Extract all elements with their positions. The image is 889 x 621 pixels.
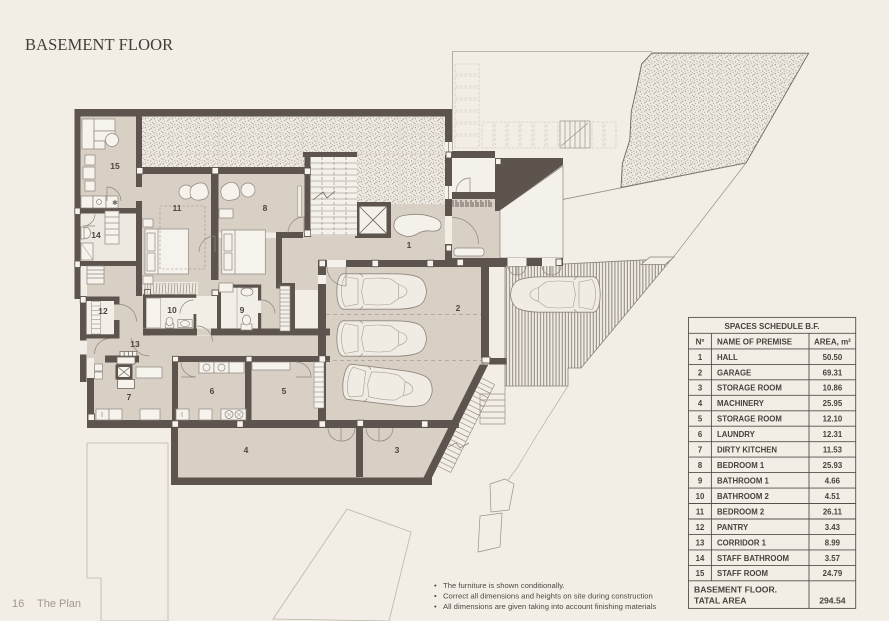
svg-text:DIRTY KITCHEN: DIRTY KITCHEN	[717, 446, 777, 455]
svg-text:2: 2	[698, 368, 703, 377]
svg-text:BASEMENT FLOOR.: BASEMENT FLOOR.	[694, 585, 777, 595]
svg-text:69.31: 69.31	[823, 368, 843, 377]
svg-text:10.86: 10.86	[823, 384, 843, 393]
svg-text:12.31: 12.31	[823, 430, 843, 439]
svg-text:3: 3	[395, 445, 400, 455]
svg-text:4.66: 4.66	[825, 477, 841, 486]
svg-text:50.50: 50.50	[823, 353, 843, 362]
svg-text:SPACES SCHEDULE B.F.: SPACES SCHEDULE B.F.	[725, 322, 820, 331]
svg-text:7: 7	[127, 392, 132, 402]
svg-text:•: •	[434, 592, 437, 601]
svg-text:5: 5	[282, 386, 287, 396]
svg-text:25.95: 25.95	[823, 399, 843, 408]
svg-text:MACHINERY: MACHINERY	[717, 399, 765, 408]
svg-text:9: 9	[698, 477, 703, 486]
svg-text:9: 9	[240, 305, 245, 315]
svg-text:•: •	[434, 602, 437, 611]
svg-text:13: 13	[696, 538, 705, 547]
svg-text:BEDROOM 2: BEDROOM 2	[717, 507, 765, 516]
svg-text:12.10: 12.10	[823, 415, 843, 424]
svg-text:•: •	[434, 581, 437, 590]
svg-text:3.43: 3.43	[825, 523, 841, 532]
svg-text:AREA, m²: AREA, m²	[814, 338, 851, 347]
svg-text:TATAL AREA: TATAL AREA	[694, 596, 747, 606]
svg-text:2: 2	[456, 303, 461, 313]
svg-text:BATHROOM 1: BATHROOM 1	[717, 477, 769, 486]
svg-text:14: 14	[91, 230, 101, 240]
svg-text:15: 15	[696, 569, 705, 578]
svg-text:294.54: 294.54	[819, 596, 846, 606]
svg-text:3: 3	[698, 384, 703, 393]
svg-text:1: 1	[407, 240, 412, 250]
svg-text:NAME OF PREMISE: NAME OF PREMISE	[717, 338, 793, 347]
svg-text:6: 6	[210, 386, 215, 396]
svg-text:11: 11	[696, 507, 705, 516]
svg-text:13: 13	[130, 339, 140, 349]
svg-text:7: 7	[698, 446, 702, 455]
svg-text:✱: ✱	[112, 199, 118, 207]
svg-text:14: 14	[696, 554, 705, 563]
svg-text:10: 10	[696, 492, 705, 501]
svg-text:CORRIDOR 1: CORRIDOR 1	[717, 538, 767, 547]
svg-text:4: 4	[698, 399, 703, 408]
svg-text:5: 5	[698, 415, 703, 424]
svg-text:Correct all dimensions and hei: Correct all dimensions and heights on si…	[443, 592, 653, 601]
svg-text:12: 12	[696, 523, 705, 532]
svg-text:4: 4	[244, 445, 249, 455]
svg-text:3.57: 3.57	[825, 554, 840, 563]
svg-text:16: 16	[12, 598, 24, 610]
svg-text:12: 12	[98, 306, 108, 316]
svg-text:8.99: 8.99	[825, 538, 841, 547]
svg-text:Nº: Nº	[696, 338, 705, 347]
svg-text:BEDROOM 1: BEDROOM 1	[717, 461, 765, 470]
svg-text:All dimensions are given takin: All dimensions are given taking into acc…	[443, 602, 656, 611]
svg-text:15: 15	[110, 161, 120, 171]
svg-text:BASEMENT FLOOR: BASEMENT FLOOR	[25, 35, 173, 54]
svg-text:The furniture is shown conditi: The furniture is shown conditionally.	[443, 581, 565, 590]
svg-text:11: 11	[173, 203, 182, 213]
svg-text:HALL: HALL	[717, 353, 738, 362]
svg-text:PANTRY: PANTRY	[717, 523, 749, 532]
svg-text:25.93: 25.93	[823, 461, 843, 470]
svg-text:6: 6	[698, 430, 703, 439]
svg-text:STORAGE ROOM: STORAGE ROOM	[717, 415, 782, 424]
svg-text:LAUNDRY: LAUNDRY	[717, 430, 756, 439]
svg-text:26.11: 26.11	[823, 507, 843, 516]
svg-text:11.53: 11.53	[823, 446, 843, 455]
svg-text:STORAGE ROOM: STORAGE ROOM	[717, 384, 782, 393]
svg-text:8: 8	[698, 461, 703, 470]
svg-text:STAFF ROOM: STAFF ROOM	[717, 569, 768, 578]
svg-text:24.79: 24.79	[823, 569, 843, 578]
svg-text:10: 10	[167, 305, 177, 315]
svg-text:BATHROOM 2: BATHROOM 2	[717, 492, 769, 501]
svg-text:The Plan: The Plan	[37, 598, 81, 610]
svg-text:1: 1	[698, 353, 703, 362]
svg-text:GARAGE: GARAGE	[717, 368, 751, 377]
svg-text:4.51: 4.51	[825, 492, 841, 501]
svg-text:STAFF BATHROOM: STAFF BATHROOM	[717, 554, 789, 563]
svg-text:8: 8	[263, 203, 268, 213]
